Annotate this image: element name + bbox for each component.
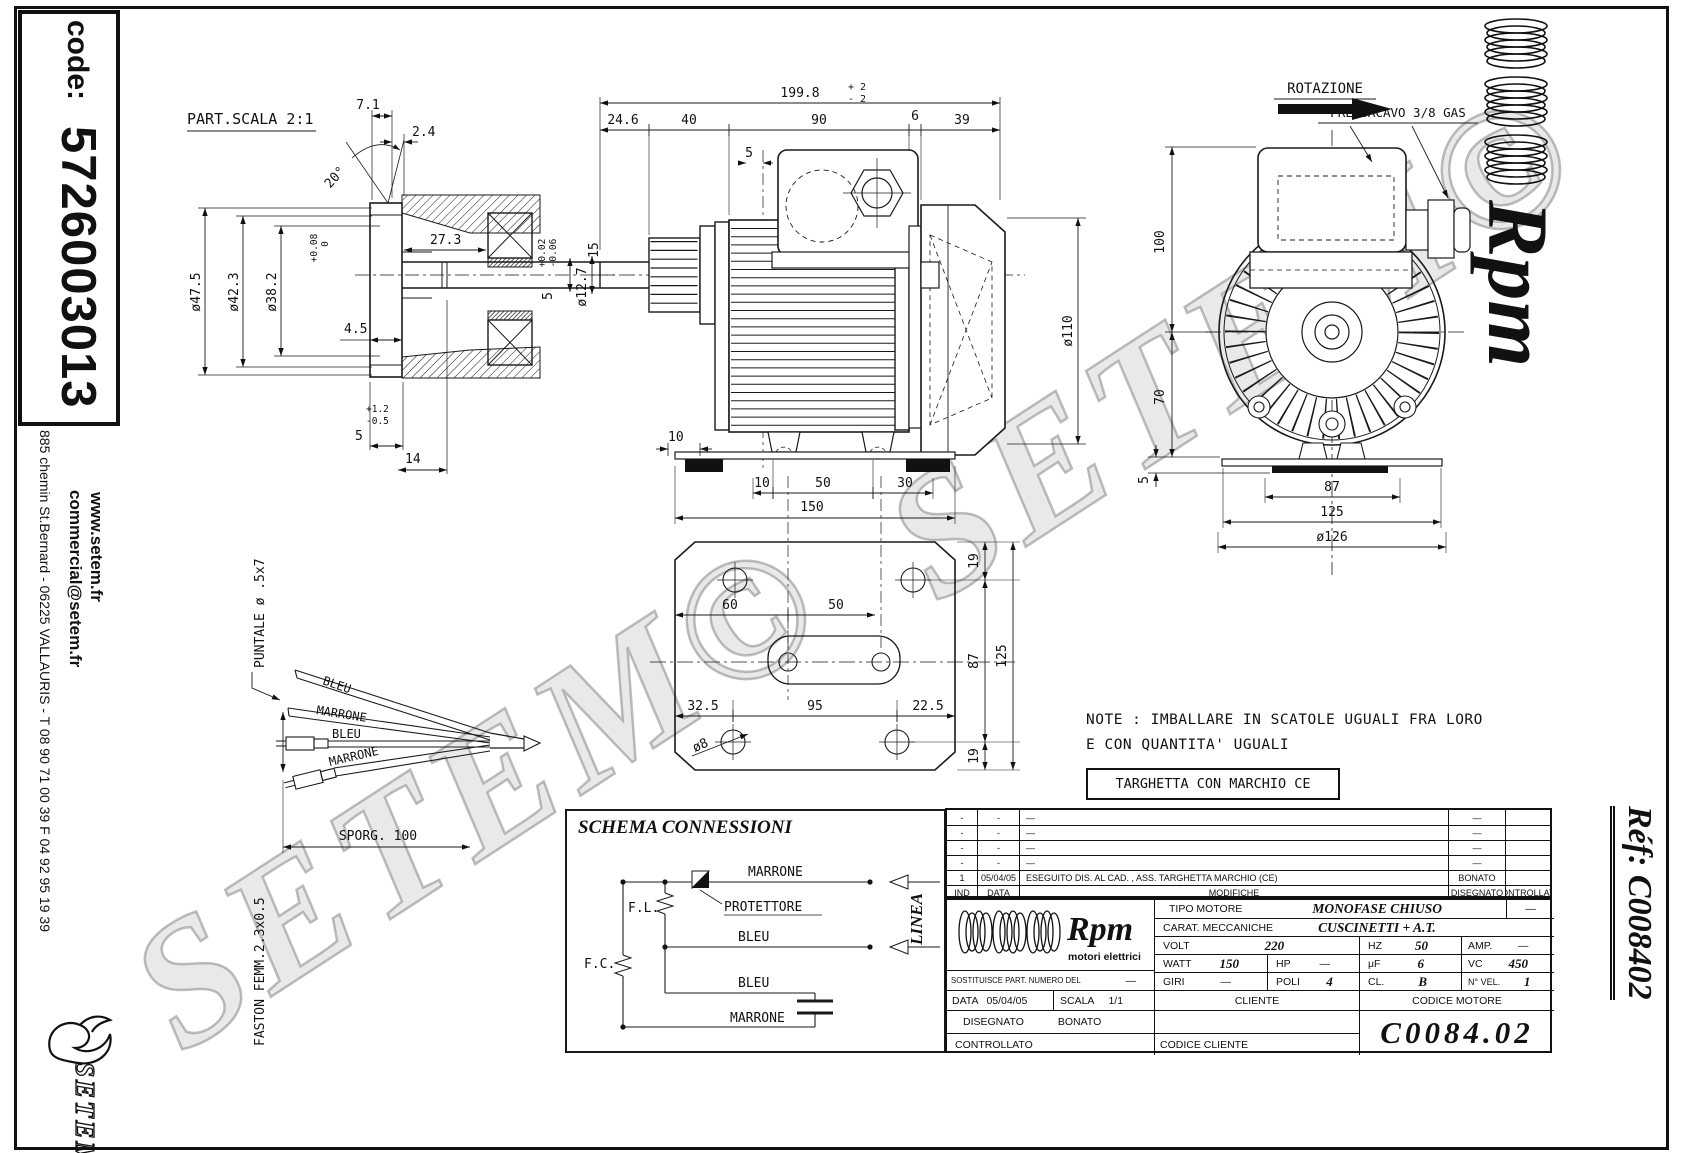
rev-modifiche: ESEGUITO DIS. AL CAD. , ASS. TARGHETTA M… xyxy=(1019,871,1448,885)
dim-shaft-tol-plus: +0.02 xyxy=(537,239,548,268)
rev-ind: - xyxy=(947,826,977,840)
schema-wire4-label: MARRONE xyxy=(730,1011,785,1026)
dim-r19a: 19 xyxy=(967,553,982,569)
amp-cell: AMP. — xyxy=(1461,936,1554,954)
dim-d325: 32.5 xyxy=(687,699,718,714)
dim-hole: ø8 xyxy=(690,736,710,756)
hp-label: HP xyxy=(1268,958,1291,970)
disegnato-row: DISEGNATO BONATO xyxy=(947,1010,1154,1033)
part-detail-title: PART.SCALA 2:1 xyxy=(187,110,313,128)
giri-value: — xyxy=(1221,976,1232,988)
sporg-label: SPORG. 100 xyxy=(339,829,417,844)
poli-label: POLI xyxy=(1268,976,1300,988)
controllato-row: CONTROLLATO xyxy=(947,1033,1154,1055)
dim-r125: 125 xyxy=(995,644,1010,667)
data-row: DATA 05/04/05 xyxy=(947,990,1053,1010)
vc-value: 450 xyxy=(1509,956,1529,972)
faston-label: FASTON FEMM.2.3x0.5 xyxy=(253,897,268,1046)
dim-d95: 95 xyxy=(807,699,823,714)
rev-modifiche: — xyxy=(1019,856,1448,870)
dim-overall-plus: + 2 xyxy=(848,82,866,93)
table-row: - - — — xyxy=(947,840,1550,855)
rev-disegnato: BONATO xyxy=(1448,871,1505,885)
rev-ind: - xyxy=(947,841,977,855)
uf-label: μF xyxy=(1360,958,1380,970)
dim-tol5-minus: -0.5 xyxy=(366,416,389,427)
cliente-label: CLIENTE xyxy=(1235,995,1279,1007)
vc-cell: VC 450 xyxy=(1461,954,1554,972)
motor-front-view: ROTAZIONE PRESSACAVO 3/8 GAS xyxy=(1137,81,1478,575)
targhetta-box: TARGHETTA CON MARCHIO CE xyxy=(1086,768,1340,800)
rev-disegnato: — xyxy=(1448,826,1505,840)
protettore-label: PROTETTORE xyxy=(724,900,802,915)
dim-w87: 87 xyxy=(1324,480,1340,495)
gland-label: PRESSACAVO 3/8 GAS xyxy=(1330,105,1465,120)
cl-cell: CL. B xyxy=(1359,972,1461,990)
dim-thickness: 7.1 xyxy=(356,98,379,113)
dim-b10: 10 xyxy=(754,476,770,491)
fl-label: F.L. xyxy=(628,901,659,916)
nvel-value: 1 xyxy=(1524,974,1531,990)
dim-w150: 150 xyxy=(800,500,823,515)
schema-wire3-label: BLEU xyxy=(738,976,769,991)
motor-side-view: 199.8 + 2 - 2 24.6 40 90 6 39 5 xyxy=(592,82,1086,499)
dim-w125: 125 xyxy=(1320,505,1343,520)
dim-d50: 50 xyxy=(828,598,844,613)
tipo-motore-value: MONOFASE CHIUSO xyxy=(1312,901,1442,917)
rev-controllato xyxy=(1505,826,1550,840)
codice-cliente-cell: CODICE CLIENTE xyxy=(1154,1033,1359,1055)
hp-value: — xyxy=(1320,958,1331,970)
nvel-label: N° VEL. xyxy=(1462,977,1500,987)
scala-label: SCALA xyxy=(1054,995,1094,1007)
table-row: - - — — xyxy=(947,810,1550,825)
dim-tol5-plus: +1.2 xyxy=(366,404,389,415)
rev-modifiche: — xyxy=(1019,841,1448,855)
dim-shaft-tol-minus: -0.06 xyxy=(548,238,559,267)
dim-d45: 4.5 xyxy=(344,322,367,337)
note-line2: E CON QUANTITA' UGUALI xyxy=(1086,737,1289,753)
nvel-cell: N° VEL. 1 xyxy=(1461,972,1554,990)
fc-label: F.C. xyxy=(584,957,615,972)
disegnato-value: BONATO xyxy=(1024,1016,1101,1028)
dim-b30: 30 xyxy=(897,476,913,491)
disegnato-label: DISEGNATO xyxy=(947,1016,1024,1028)
dim-d3: ø38.2 xyxy=(265,272,280,311)
carat-row: CARAT. MECCANICHE CUSCINETTI + A.T. xyxy=(1154,918,1554,936)
rev-controllato xyxy=(1505,856,1550,870)
dim-d225: 22.5 xyxy=(912,699,943,714)
dim-c3: 90 xyxy=(811,113,827,128)
volt-value: 220 xyxy=(1265,938,1285,954)
dim-c2: 40 xyxy=(681,113,697,128)
cliente-header-cell: CLIENTE xyxy=(1154,990,1359,1010)
watt-cell: WATT 150 xyxy=(1154,954,1267,972)
rev-data: - xyxy=(977,826,1019,840)
dim-angle: 20° xyxy=(322,164,349,191)
table-row: - - — — xyxy=(947,825,1550,840)
dim-c4: 6 xyxy=(911,109,919,124)
tipo-extra-value: — xyxy=(1525,903,1536,915)
tipo-extra-cell: — xyxy=(1506,900,1554,918)
dim-overall-minus: - 2 xyxy=(848,94,866,105)
hz-value: 50 xyxy=(1415,938,1428,954)
scala-cell: SCALA 1/1 xyxy=(1053,990,1154,1010)
codice-motore-label: CODICE MOTORE xyxy=(1412,995,1502,1007)
wire1-label: BLEU xyxy=(321,674,353,697)
dim-h70: 70 xyxy=(1153,389,1168,405)
table-row: - - — — xyxy=(947,855,1550,870)
dim-b50: 50 xyxy=(815,476,831,491)
codice-motore-header-cell: CODICE MOTORE xyxy=(1359,990,1554,1010)
scala-value: 1/1 xyxy=(1094,995,1123,1007)
rev-disegnato: — xyxy=(1448,856,1505,870)
dim-step: 2.4 xyxy=(412,125,436,140)
cliente-empty-cell xyxy=(1154,1010,1359,1033)
connection-schema: SCHEMA CONNESSIONI PROTETTORE MARRONE F.… xyxy=(566,810,945,1052)
volt-cell: VOLT 220 xyxy=(1154,936,1359,954)
rev-controllato xyxy=(1505,810,1550,825)
wire2-label: MARRONE xyxy=(316,703,368,725)
part-detail: PART.SCALA 2:1 ø47.5 ø42.3 ø38.2 +0.08 0 xyxy=(187,98,615,474)
sostituisce-value: — xyxy=(1126,975,1155,987)
dim-depth: 27.3 xyxy=(430,233,461,248)
amp-label: AMP. xyxy=(1462,940,1492,952)
hp-cell: HP — xyxy=(1267,954,1359,972)
sostituisce-label: SOSTITUISCE PART. NUMERO DEL xyxy=(947,976,1081,985)
rpm-logo-small: Rpm motori elettrici xyxy=(947,900,1154,970)
wire-detail: PUNTALE ø .5x7 FASTON FEMM.2.3x0.5 BLEU … xyxy=(252,558,540,1046)
rev-data: 05/04/05 xyxy=(977,871,1019,885)
targhetta-text: TARGHETTA CON MARCHIO CE xyxy=(1115,776,1310,792)
rev-controllato xyxy=(1505,841,1550,855)
giri-cell: GIRI — xyxy=(1154,972,1267,990)
note-line1: NOTE : IMBALLARE IN SCATOLE UGUALI FRA L… xyxy=(1086,712,1483,728)
dim-d5: 5 xyxy=(355,429,363,444)
codice-motore-value: C0084.02 xyxy=(1380,1015,1533,1051)
hz-label: HZ xyxy=(1360,940,1382,952)
watt-label: WATT xyxy=(1155,958,1192,970)
cl-label: CL. xyxy=(1360,976,1384,988)
schema-title: SCHEMA CONNESSIONI xyxy=(578,817,792,838)
dim-d3-tol-zero: 0 xyxy=(320,241,331,247)
uf-cell: μF 6 xyxy=(1359,954,1461,972)
data-value: 05/04/05 xyxy=(978,995,1027,1007)
dim-w126: ø126 xyxy=(1316,530,1347,545)
uf-value: 6 xyxy=(1417,956,1424,972)
title-block: Rpm motori elettrici SOSTITUISCE PART. N… xyxy=(945,898,1552,1053)
base-plate-view: 150 60 50 32.5 95 22.5 xyxy=(650,466,1020,770)
dim-h100: 100 xyxy=(1153,230,1168,253)
rpm-logo-text: Rpm xyxy=(1066,911,1133,948)
volt-label: VOLT xyxy=(1155,940,1190,952)
rpm-logo-subtext: motori elettrici xyxy=(1068,951,1141,963)
linea-label: LINEA xyxy=(907,893,926,946)
dim-fan: ø110 xyxy=(1061,315,1076,346)
revision-table: - - — — - - — — - - — — - - — — 1 xyxy=(945,808,1552,898)
rev-disegnato: — xyxy=(1448,810,1505,825)
rev-data: - xyxy=(977,841,1019,855)
cl-value: B xyxy=(1418,974,1427,990)
tipo-motore-label: TIPO MOTORE xyxy=(1155,903,1242,915)
dim-foot10: 10 xyxy=(668,430,684,445)
vc-label: VC xyxy=(1462,958,1483,970)
tipo-motore-row: TIPO MOTORE MONOFASE CHIUSO xyxy=(1154,900,1506,918)
dim-d2: ø42.3 xyxy=(227,272,242,311)
table-row: 1 05/04/05 ESEGUITO DIS. AL CAD. , ASS. … xyxy=(947,870,1550,885)
dim-d5: 5 xyxy=(745,146,753,161)
title-block-logo-cell: Rpm motori elettrici xyxy=(947,900,1154,970)
puntale-label: PUNTALE ø .5x7 xyxy=(253,558,268,668)
rev-modifiche: — xyxy=(1019,810,1448,825)
dim-h5: 5 xyxy=(1137,476,1152,484)
controllato-label: CONTROLLATO xyxy=(947,1039,1033,1051)
rev-disegnato: — xyxy=(1448,841,1505,855)
wire3-label: BLEU xyxy=(332,727,361,741)
rev-modifiche: — xyxy=(1019,826,1448,840)
rev-ind: 1 xyxy=(947,871,977,885)
dim-overall: 199.8 xyxy=(780,86,819,101)
dim-od: ø47.5 xyxy=(189,272,204,311)
rev-ind: - xyxy=(947,810,977,825)
dim-r19b: 19 xyxy=(967,748,982,764)
drawing-sheet: SETEM© SETEM© code: 5726003013 www.setem… xyxy=(0,0,1683,1153)
hz-cell: HZ 50 xyxy=(1359,936,1461,954)
dim-r87: 87 xyxy=(967,653,982,669)
data-label: DATA xyxy=(947,995,978,1007)
rev-controllato xyxy=(1505,871,1550,885)
carat-value: CUSCINETTI + A.T. xyxy=(1318,920,1436,936)
poli-cell: POLI 4 xyxy=(1267,972,1359,990)
carat-label: CARAT. MECCANICHE xyxy=(1155,922,1273,934)
schema-wire1-label: MARRONE xyxy=(748,865,803,880)
rev-ind: - xyxy=(947,856,977,870)
dim-shaft: ø12.7 xyxy=(575,267,590,306)
schema-wire2-label: BLEU xyxy=(738,930,769,945)
amp-value: — xyxy=(1518,940,1529,952)
dim-c1: 24.6 xyxy=(607,113,638,128)
giri-label: GIRI xyxy=(1155,976,1185,988)
rev-data: - xyxy=(977,856,1019,870)
dim-d3-tol-plus: +0.08 xyxy=(309,233,320,262)
dim-key5: 5 xyxy=(541,292,556,300)
dim-c5: 39 xyxy=(954,113,970,128)
dim-d60: 60 xyxy=(722,598,738,613)
rotation-label: ROTAZIONE xyxy=(1287,81,1363,97)
codice-motore-value-cell: C0084.02 xyxy=(1359,1010,1554,1055)
rev-data: - xyxy=(977,810,1019,825)
sostituisce-row: SOSTITUISCE PART. NUMERO DEL — xyxy=(947,970,1154,990)
dim-d14: 14 xyxy=(405,452,421,467)
poli-value: 4 xyxy=(1326,974,1333,990)
codice-cliente-label: CODICE CLIENTE xyxy=(1155,1039,1248,1051)
watt-value: 150 xyxy=(1220,956,1240,972)
